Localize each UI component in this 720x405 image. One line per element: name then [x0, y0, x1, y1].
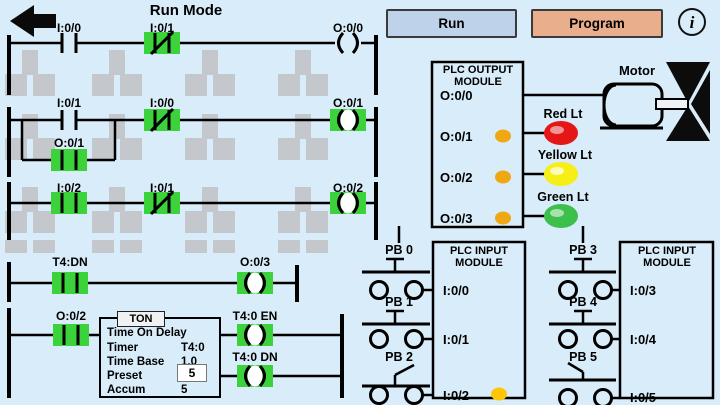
ton-description: Time On Delay	[107, 327, 187, 339]
pb5-label: PB 5	[569, 351, 597, 364]
input2-ch1-label: I:0/4	[630, 332, 656, 347]
label-r3-c1: I:0/2	[57, 182, 81, 195]
pushbutton-pb5[interactable]	[549, 363, 616, 405]
contact-no-r1-i00[interactable]	[62, 33, 76, 53]
pb2-label: PB 2	[385, 351, 413, 364]
output-ch2-label: O:0/2	[440, 170, 473, 185]
ton-timer-label: Timer	[107, 342, 138, 354]
ton-accum-label: Accum	[107, 384, 145, 396]
label-r4-c1: T4:DN	[52, 256, 87, 269]
input1-ch1-label: I:0/1	[443, 332, 469, 347]
motor-label: Motor	[619, 64, 655, 77]
pushbutton-pb0[interactable]	[362, 259, 430, 299]
pb1-label: PB 1	[385, 296, 413, 309]
label-r5-c1: O:0/2	[56, 310, 86, 323]
highlight-r4-c1	[52, 272, 88, 294]
coil-r2-o01[interactable]	[339, 110, 358, 131]
yellow-light-label: Yellow Lt	[538, 149, 592, 162]
mode-title: Run Mode	[150, 2, 223, 19]
indicator-o01	[495, 130, 511, 143]
ton-timer-value: T4:0	[181, 342, 205, 354]
label-r2-c1: I:0/1	[57, 97, 81, 110]
label-r4-coil: O:0/3	[240, 256, 270, 269]
ton-accum-value: 5	[181, 384, 187, 396]
coil-ton-en[interactable]	[246, 325, 265, 346]
input1-ch2-label: I:0/2	[443, 388, 469, 403]
pushbutton-pb4[interactable]	[549, 311, 616, 348]
plc-simulator-screen: Run Mode Run Program i I:0/0 I:0/1 O:0/0…	[0, 0, 720, 405]
ton-title-tab: TON	[117, 311, 165, 327]
program-button[interactable]: Program	[531, 9, 663, 38]
back-arrow-button[interactable]	[10, 5, 56, 37]
info-button[interactable]: i	[678, 8, 706, 36]
indicator-o03	[495, 212, 511, 225]
label-r2-branch: O:0/1	[54, 137, 84, 150]
pushbutton-pb3[interactable]	[549, 259, 616, 299]
pb0-label: PB 0	[385, 244, 413, 257]
output-ch0-label: O:0/0	[440, 88, 473, 103]
coil-ton-dn[interactable]	[246, 366, 265, 387]
run-button[interactable]: Run	[386, 9, 517, 38]
pb3-label: PB 3	[569, 244, 597, 257]
ton-preset-label: Preset	[107, 370, 142, 382]
pb4-label: PB 4	[569, 296, 597, 309]
highlight-r5-c1	[53, 324, 89, 346]
indicator-o02	[495, 171, 511, 184]
label-ton-en: T4:0 EN	[233, 310, 278, 323]
label-r1-c1: I:0/0	[57, 22, 81, 35]
output-module-title: PLC OUTPUT MODULE	[436, 64, 520, 88]
label-r1-c2: I:0/1	[150, 22, 174, 35]
highlight-r3-c1	[51, 192, 87, 214]
input1-ch0-label: I:0/0	[443, 283, 469, 298]
input2-ch2-label: I:0/5	[630, 390, 656, 405]
ton-base-label: Time Base	[107, 356, 164, 368]
input2-ch0-label: I:0/3	[630, 283, 656, 298]
input-module-1-title: PLC INPUT MODULE	[437, 245, 521, 269]
label-ton-dn: T4:0 DN	[232, 351, 277, 364]
ton-preset-input[interactable]	[177, 364, 207, 382]
output-ch1-label: O:0/1	[440, 129, 473, 144]
output-ch3-label: O:0/3	[440, 211, 473, 226]
contact-no-r2-i01[interactable]	[62, 110, 76, 130]
label-r2-c2: I:0/0	[150, 97, 174, 110]
pushbutton-pb1[interactable]	[362, 311, 430, 348]
coil-r3-o02[interactable]	[339, 193, 358, 214]
pushbutton-pb2[interactable]	[362, 365, 430, 404]
indicator-i02	[491, 388, 507, 401]
green-light-label: Green Lt	[537, 191, 588, 204]
label-r3-coil: O:0/2	[333, 182, 363, 195]
label-r2-coil: O:0/1	[333, 97, 363, 110]
input-module-2-title: PLC INPUT MODULE	[624, 245, 710, 269]
indicator-lights	[544, 121, 578, 228]
coil-r4-o03[interactable]	[246, 273, 265, 294]
coil-r1-o00[interactable]	[339, 33, 358, 53]
label-r1-coil: O:0/0	[333, 22, 363, 35]
red-light-label: Red Lt	[544, 108, 583, 121]
highlight-r2-branch	[51, 149, 87, 171]
label-r3-c2: I:0/1	[150, 182, 174, 195]
